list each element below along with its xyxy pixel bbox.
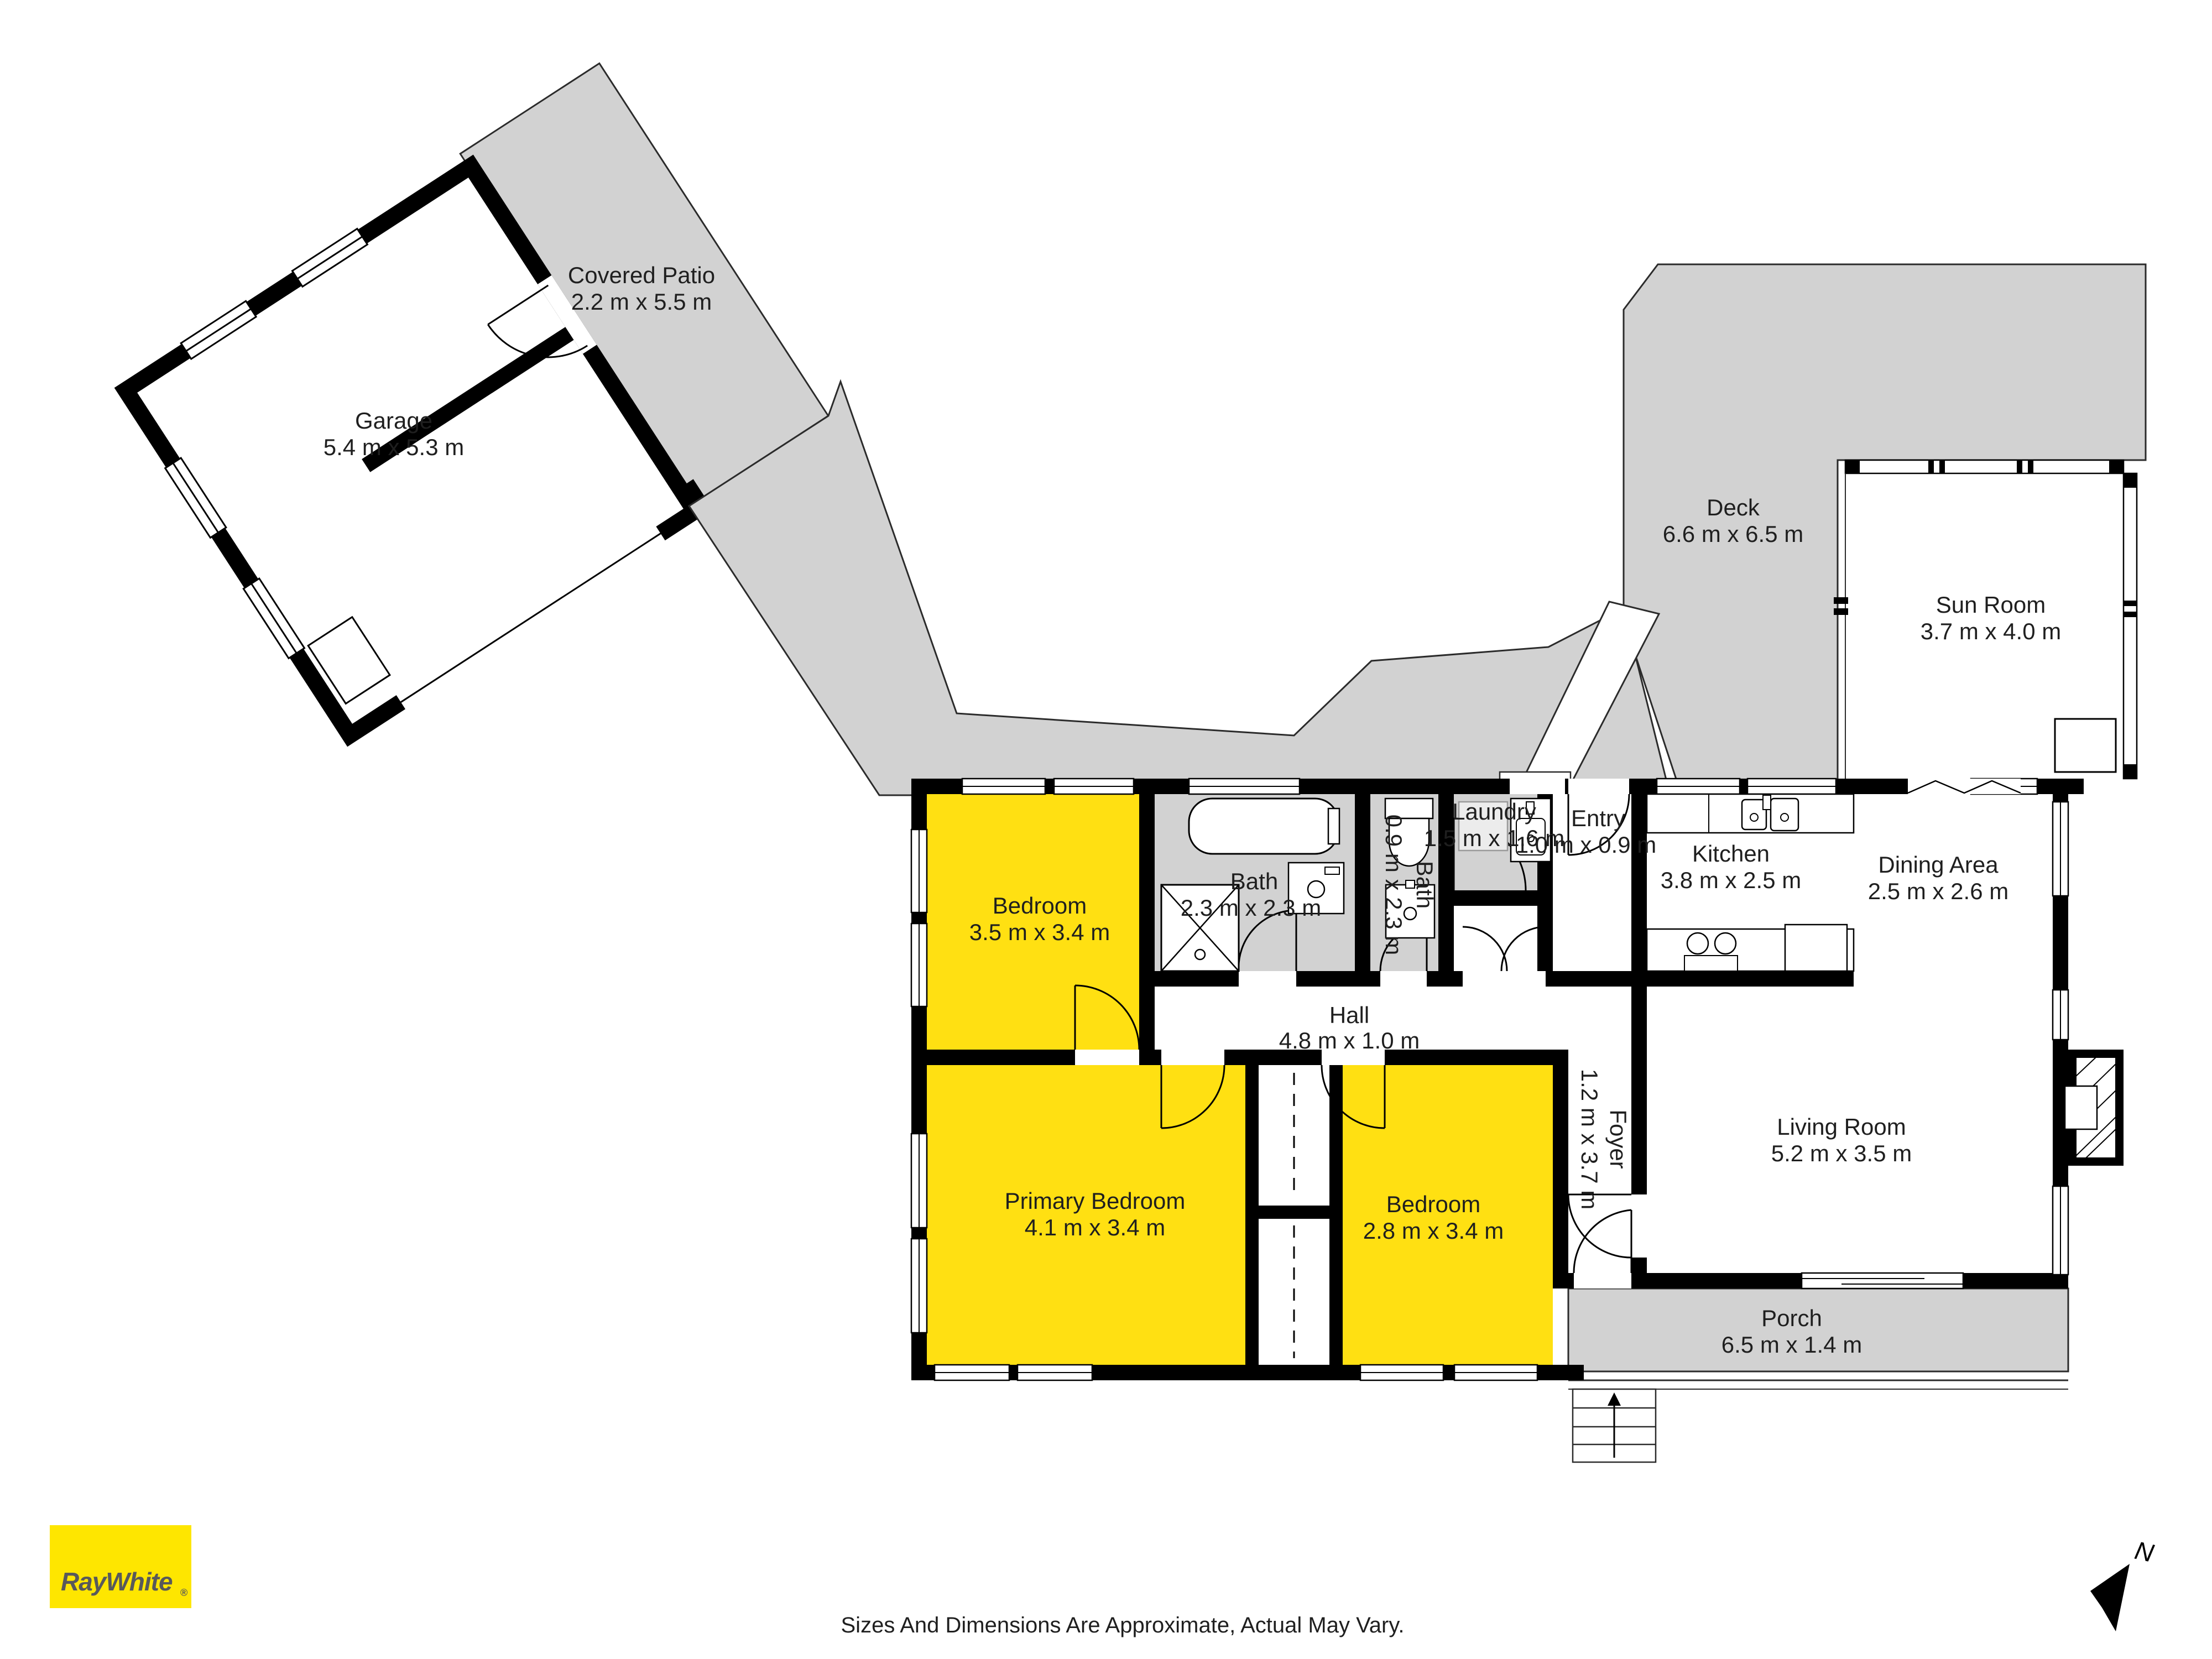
sink-basin <box>1771 799 1798 831</box>
label-dining: Dining Area <box>1878 852 1999 878</box>
disclaimer-text: Sizes And Dimensions Are Approximate, Ac… <box>841 1613 1405 1637</box>
label-primary-dims: 4.1 m x 3.4 m <box>1025 1214 1165 1240</box>
raywhite-logo: RayWhite ® <box>50 1525 191 1608</box>
label-hall: Hall <box>1329 1002 1369 1028</box>
label-bedroom-top-dims: 3.5 m x 3.4 m <box>969 919 1110 945</box>
label-covered-patio-dims: 2.2 m x 5.5 m <box>571 289 712 315</box>
kitchen-counter-bottom <box>1647 925 1854 971</box>
label-primary: Primary Bedroom <box>1005 1188 1186 1214</box>
fireplace <box>2065 1050 2124 1166</box>
north-arrow-icon: N <box>2090 1536 2157 1631</box>
label-deck: Deck <box>1707 494 1760 520</box>
kitchen-counter-top <box>1647 794 1854 833</box>
logo-text: RayWhite <box>61 1567 173 1596</box>
north-label: N <box>2132 1536 2157 1568</box>
label-dining-dims: 2.5 m x 2.6 m <box>1868 878 2008 904</box>
label-entry-dims: 1.0 m x 0.9 m <box>1516 832 1656 858</box>
label-kitchen-dims: 3.8 m x 2.5 m <box>1661 867 1801 893</box>
label-living-dims: 5.2 m x 3.5 m <box>1771 1140 1912 1166</box>
porch-steps <box>1573 1389 1656 1462</box>
label-sun-room-dims: 3.7 m x 4.0 m <box>1921 618 2061 644</box>
label-bedroom-small: Bedroom <box>1386 1191 1480 1217</box>
label-covered-patio: Covered Patio <box>568 262 715 288</box>
label-foyer-dims: 1.2 m x 3.7 m <box>1577 1069 1603 1209</box>
label-bath-dims: 2.3 m x 2.3 m <box>1181 895 1321 921</box>
label-garage: Garage <box>355 408 432 434</box>
label-deck-dims: 6.6 m x 6.5 m <box>1663 521 1803 547</box>
logo-registered-mark: ® <box>180 1587 187 1598</box>
sun-room-unit <box>2055 719 2116 772</box>
label-bath: Bath <box>1230 868 1278 894</box>
walkway-area <box>689 382 1670 795</box>
label-bedroom-top: Bedroom <box>993 893 1087 919</box>
sink-tap <box>1763 795 1771 810</box>
label-entry: Entry <box>1571 805 1625 831</box>
label-living: Living Room <box>1777 1114 1906 1140</box>
label-sun-room: Sun Room <box>1936 592 2046 618</box>
label-foyer: Foyer <box>1605 1109 1631 1168</box>
oven <box>1684 956 1738 971</box>
label-kitchen: Kitchen <box>1692 841 1770 867</box>
label-porch-dims: 6.5 m x 1.4 m <box>1721 1332 1862 1358</box>
label-hall-dims: 4.8 m x 1.0 m <box>1279 1027 1420 1053</box>
bathtub <box>1189 799 1339 854</box>
label-laundry: Laundry <box>1452 799 1536 825</box>
label-bedroom-small-dims: 2.8 m x 3.4 m <box>1363 1218 1504 1244</box>
kitchen-island <box>1785 925 1847 971</box>
floorplan-page: Covered Patio 2.2 m x 5.5 m Garage 5.4 m… <box>0 0 2212 1659</box>
label-garage-dims: 5.4 m x 5.3 m <box>324 434 464 460</box>
floorplan-canvas: Covered Patio 2.2 m x 5.5 m Garage 5.4 m… <box>0 0 2212 1659</box>
label-porch: Porch <box>1761 1305 1822 1331</box>
label-bath-small-dims: 0.9 m x 2.3 m <box>1381 815 1407 955</box>
label-bath-small: Bath <box>1412 861 1438 909</box>
